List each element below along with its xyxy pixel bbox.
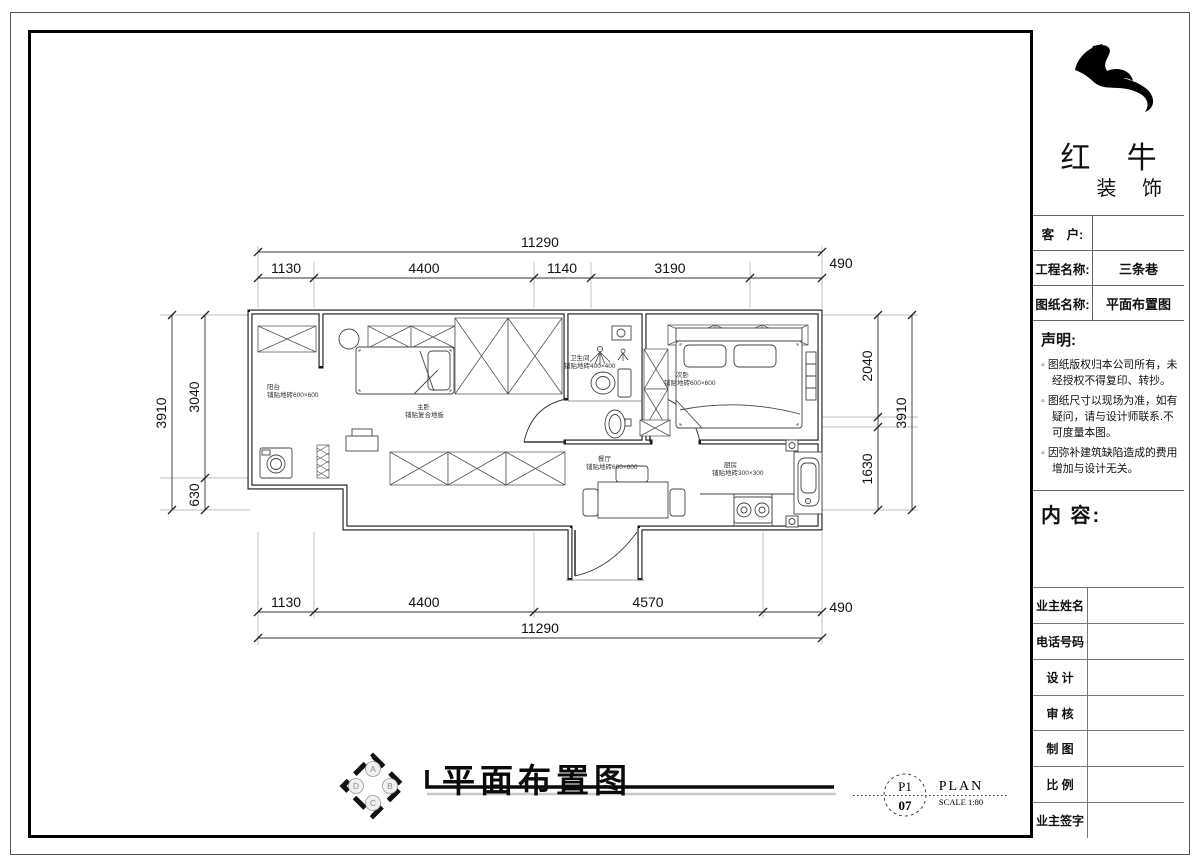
dimension-labels: 11290 1130 4400 1140 3190 490 1130 4400 … xyxy=(153,234,909,636)
brand-name: 红 牛 xyxy=(1033,133,1184,177)
room-balcony: 阳台 xyxy=(267,382,280,391)
bathroom-sink xyxy=(605,410,631,438)
brand-subname: 装 饰 xyxy=(1096,172,1172,201)
room-kitchen: 厨房 xyxy=(724,460,737,469)
dining-set xyxy=(583,466,685,518)
dim-bottom-total: 11290 xyxy=(521,620,559,636)
dim-top-1: 1130 xyxy=(271,260,301,276)
design-label: 设 计 xyxy=(1033,660,1088,695)
content-section: 内 容: xyxy=(1033,490,1184,587)
dim-right-2: 1630 xyxy=(859,453,875,484)
dim-bottom-4: 490 xyxy=(829,599,853,615)
drawing-title: 平面布置图 xyxy=(442,763,632,800)
compass-d: D xyxy=(353,781,359,791)
room-second-spec: 铺贴地砖600×600 xyxy=(664,378,716,387)
dim-right-1: 2040 xyxy=(859,350,875,381)
compass-c: C xyxy=(370,798,376,808)
draft-value xyxy=(1088,731,1184,766)
dim-bottom-2: 4400 xyxy=(408,594,439,610)
room-master: 主卧 xyxy=(417,402,431,411)
room-dining-spec: 铺贴地砖600×600 xyxy=(586,462,638,471)
phone-label: 电话号码 xyxy=(1033,624,1088,659)
project-name-label: 工程名称: xyxy=(1033,251,1093,285)
signoff-row-scale: 比 例 xyxy=(1033,766,1184,802)
scale-value xyxy=(1088,767,1184,802)
dim-top-total: 11290 xyxy=(521,234,559,250)
owner-name-value xyxy=(1088,588,1184,623)
bed-double xyxy=(676,328,802,428)
dim-top-4: 3190 xyxy=(654,260,685,276)
round-table xyxy=(339,329,359,349)
statement-item: 因弥补建筑缺陷造成的费用增加与设计无关。 xyxy=(1041,446,1178,477)
dim-left-1: 3040 xyxy=(186,381,202,412)
dim-bottom-3: 4570 xyxy=(632,594,663,610)
statement-item: 图纸尺寸以现场为准，如有疑问，请与设计师联系.不可度量本图。 xyxy=(1041,394,1178,441)
dim-bottom-1: 1130 xyxy=(271,594,301,610)
bed-master xyxy=(356,347,454,394)
field-row-customer: 客 户: xyxy=(1033,216,1184,251)
signoff-row-draft: 制 图 xyxy=(1033,730,1184,766)
content-label: 内 容: xyxy=(1041,505,1101,527)
dim-top-5: 490 xyxy=(829,255,853,271)
owner-name-label: 业主姓名 xyxy=(1033,588,1088,623)
statement-item: 图纸版权归本公司所有，未经授权不得复印、转抄。 xyxy=(1041,358,1178,389)
customer-label: 客 户: xyxy=(1033,216,1093,250)
room-second: 次卧 xyxy=(676,370,690,379)
signoff-row-review: 审 核 xyxy=(1033,695,1184,731)
sheet-no-bottom: 07 xyxy=(899,798,913,813)
compass-symbol: A B C D xyxy=(343,756,403,816)
drawing-name-label: 图纸名称: xyxy=(1033,286,1093,320)
scale-label: 比 例 xyxy=(1033,767,1088,802)
brand-logo-area: 红 牛 装 饰 xyxy=(1033,30,1184,215)
sheet-number: P1 07 PLAN SCALE 1:80 xyxy=(853,774,1008,816)
title-block-sidebar: 红 牛 装 饰 客 户: 工程名称: 三条巷 图纸名称: 平面布置图 声明: 图… xyxy=(1030,30,1184,838)
room-dining: 餐厅 xyxy=(598,454,612,463)
floor-plan-svg: 11290 1130 4400 1140 3190 490 1130 4400 … xyxy=(28,30,1030,838)
washing-machine xyxy=(260,448,292,478)
dim-right-outer: 3910 xyxy=(893,397,909,428)
sheet-type: PLAN xyxy=(939,779,984,794)
room-bathroom: 卫生间 xyxy=(570,353,590,362)
washbasin-cabinet xyxy=(612,326,631,340)
tv-stand xyxy=(346,429,378,451)
field-row-drawing: 图纸名称: 平面布置图 xyxy=(1033,286,1184,321)
project-name-value: 三条巷 xyxy=(1093,251,1184,285)
signature-label: 业主签字 xyxy=(1033,803,1088,838)
hatched-column xyxy=(317,445,329,478)
signoff-row-phone: 电话号码 xyxy=(1033,623,1184,659)
drawing-name-value: 平面布置图 xyxy=(1093,286,1184,320)
sheet-no-top: P1 xyxy=(898,779,912,794)
signoff-row-design: 设 计 xyxy=(1033,659,1184,695)
toilet xyxy=(591,369,631,397)
review-value xyxy=(1088,696,1184,731)
stove xyxy=(734,497,772,523)
signoff-row-owner-name: 业主姓名 xyxy=(1033,587,1184,623)
dimension-extension-lines xyxy=(160,246,918,645)
bull-logo-icon xyxy=(1049,38,1171,134)
phone-value xyxy=(1088,624,1184,659)
room-kitchen-spec: 铺贴地砖300×300 xyxy=(712,468,764,477)
room-balcony-spec: 铺贴地砖600×600 xyxy=(267,390,319,399)
design-value xyxy=(1088,660,1184,695)
project-fields: 客 户: 工程名称: 三条巷 图纸名称: 平面布置图 xyxy=(1033,215,1184,320)
statement-section: 声明: 图纸版权归本公司所有，未经授权不得复印、转抄。 图纸尺寸以现场为准，如有… xyxy=(1033,320,1184,490)
dimension-ticks xyxy=(168,248,916,642)
compass-a: A xyxy=(370,764,376,774)
dim-top-2: 4400 xyxy=(408,260,439,276)
statement-heading: 声明: xyxy=(1041,329,1178,350)
customer-value xyxy=(1093,216,1184,250)
room-master-spec: 铺贴复合地板 xyxy=(405,410,445,419)
field-row-project: 工程名称: 三条巷 xyxy=(1033,251,1184,286)
signature-value xyxy=(1088,803,1184,838)
review-label: 审 核 xyxy=(1033,696,1088,731)
radiator xyxy=(806,352,816,400)
footer-title-block: 平面布置图 xyxy=(427,763,836,800)
signoff-row-signature: 业主签字 xyxy=(1033,802,1184,838)
dim-top-3: 1140 xyxy=(547,260,577,276)
dim-left-outer: 3910 xyxy=(153,397,169,428)
signoff-table: 业主姓名 电话号码 设 计 审 核 制 图 比 例 业主签字 xyxy=(1033,587,1184,838)
room-bathroom-spec: 铺贴地砖400×400 xyxy=(564,361,616,370)
compass-b: B xyxy=(387,781,393,791)
sheet-scale: SCALE 1:80 xyxy=(939,797,983,807)
dim-left-2: 630 xyxy=(186,483,202,507)
draft-label: 制 图 xyxy=(1033,731,1088,766)
